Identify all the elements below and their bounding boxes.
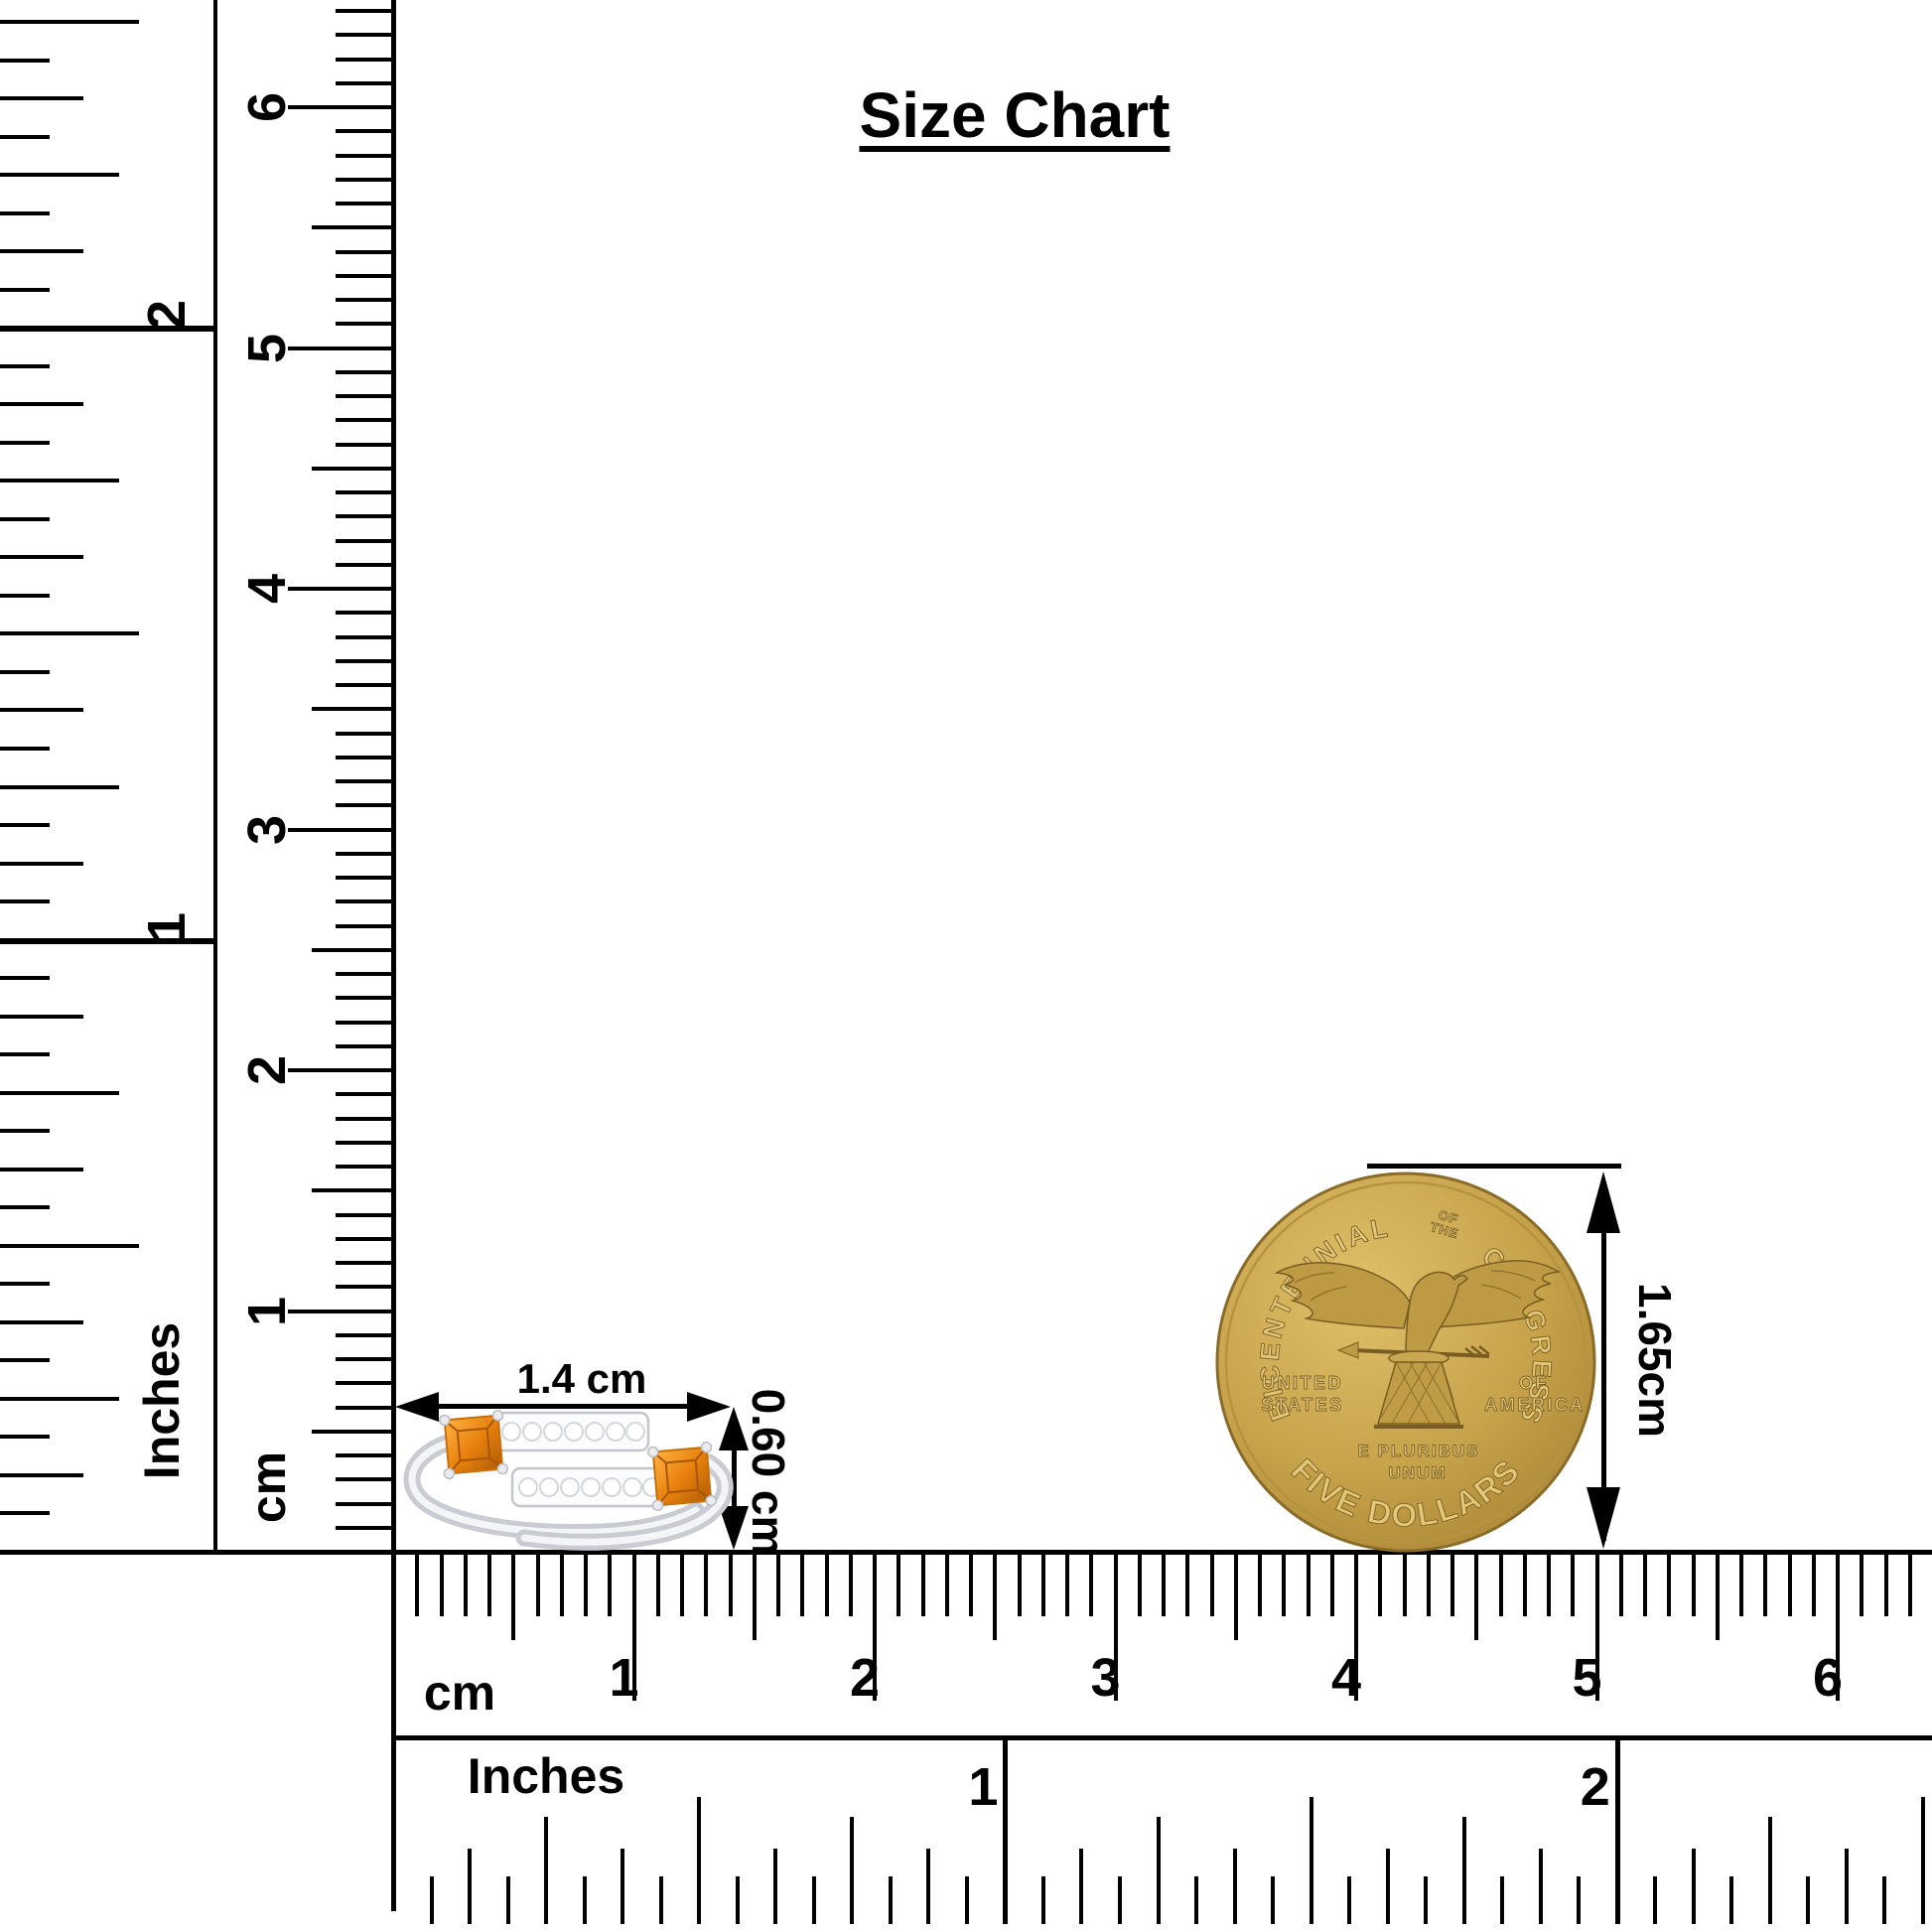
inch-tick (0, 747, 50, 751)
cm-tick (1185, 1555, 1189, 1616)
cm-tick (336, 490, 393, 494)
cm-tick (336, 1502, 393, 1506)
cm-tick (336, 58, 393, 62)
cm-tick (336, 1165, 393, 1169)
cm-tick (336, 1526, 393, 1530)
coin-motto-line1: E PLURIBUS (1358, 1442, 1480, 1460)
cm-tick (336, 1477, 393, 1481)
ruler-number: 3 (236, 814, 298, 844)
cm-tick (945, 1555, 949, 1616)
cm-tick (288, 828, 393, 832)
cm-tick (336, 178, 393, 182)
inch-tick (0, 976, 50, 980)
cm-tick (336, 1406, 393, 1410)
coin-motto-line2: UNUM (1389, 1463, 1448, 1482)
cm-tick (336, 298, 393, 302)
cm-tick (336, 972, 393, 976)
cm-tick (584, 1555, 588, 1616)
left-cm-ruler-edge (391, 0, 396, 1911)
cm-tick (336, 732, 393, 736)
cm-tick (464, 1555, 468, 1616)
inch-tick (0, 1168, 83, 1172)
inch-tick (659, 1876, 663, 1924)
cm-tick (1474, 1555, 1478, 1640)
inch-tick (1347, 1876, 1351, 1924)
inch-tick (1271, 1876, 1275, 1924)
cm-tick (312, 948, 393, 952)
cm-tick (753, 1555, 757, 1640)
inch-tick (1310, 1797, 1313, 1924)
coin-states-text: STATES (1261, 1395, 1343, 1415)
bottom-cm-label: cm (424, 1664, 495, 1722)
cm-tick (312, 707, 393, 711)
cm-tick (1643, 1555, 1647, 1616)
inch-tick (0, 1282, 50, 1286)
cm-tick (1739, 1555, 1743, 1616)
ruler-number: 6 (1813, 1647, 1843, 1709)
inch-tick (621, 1849, 624, 1924)
inch-tick (1500, 1876, 1504, 1924)
cm-tick (336, 1285, 393, 1289)
inch-tick (0, 20, 139, 24)
cm-tick (776, 1555, 780, 1616)
cm-tick (560, 1555, 564, 1616)
cm-tick (336, 924, 393, 928)
inch-tick (0, 517, 50, 521)
inch-tick (926, 1849, 930, 1924)
cm-tick (336, 1381, 393, 1385)
inch-tick (1118, 1876, 1122, 1924)
cm-tick (1499, 1555, 1503, 1616)
inch-tick (0, 1511, 50, 1515)
left-inches-label: Inches (133, 1322, 191, 1479)
inch-tick (1882, 1876, 1886, 1924)
ruler-number: 2 (1581, 1756, 1610, 1818)
inch-tick (0, 1205, 50, 1209)
inch-tick (0, 1397, 119, 1401)
cm-tick (1619, 1555, 1623, 1616)
inch-tick (0, 249, 83, 253)
ruler-number: 1 (968, 1756, 998, 1818)
cm-tick (336, 514, 393, 518)
cm-tick (1716, 1555, 1720, 1640)
inch-tick (1079, 1849, 1083, 1924)
coin-america-text: AMERICA (1484, 1395, 1586, 1415)
cm-tick (336, 1117, 393, 1121)
coin-top-reference-line (1367, 1164, 1621, 1169)
inch-tick (1653, 1876, 1657, 1924)
cm-tick (336, 443, 393, 447)
page-title: Size Chart (860, 78, 1171, 152)
cm-tick (1089, 1555, 1093, 1616)
inch-tick (0, 288, 50, 292)
inch-tick (583, 1876, 587, 1924)
cm-tick (336, 1357, 393, 1361)
cm-tick (1908, 1555, 1912, 1616)
cm-tick (1403, 1555, 1407, 1616)
coin-image: BICENTENNIAL CONGRESS OF THE FIVE DOLLAR… (1215, 1172, 1596, 1553)
inch-tick (1692, 1849, 1696, 1924)
cm-tick (1162, 1555, 1166, 1616)
cm-tick (897, 1555, 900, 1616)
cm-tick (1307, 1555, 1311, 1616)
inch-tick (965, 1876, 969, 1924)
cm-tick (288, 105, 393, 109)
coin-of2-text: OF (1519, 1373, 1549, 1393)
inch-tick (0, 631, 139, 635)
inch-tick (544, 1817, 548, 1924)
ruler-number: 6 (236, 92, 298, 122)
cm-tick (288, 1068, 393, 1072)
bottom-inches-label: Inches (468, 1747, 624, 1805)
cm-tick (656, 1555, 660, 1616)
cm-tick (1692, 1555, 1696, 1616)
cm-tick (336, 274, 393, 278)
cm-tick (1234, 1555, 1238, 1640)
inch-tick (697, 1797, 701, 1924)
coin-height-label: 1.65cm (1628, 1283, 1682, 1438)
cm-tick (336, 899, 393, 903)
cm-tick (1860, 1555, 1863, 1616)
cm-tick (336, 129, 393, 133)
cm-tick (1788, 1555, 1792, 1616)
cm-tick (1812, 1555, 1816, 1616)
cm-tick (511, 1555, 515, 1640)
cm-tick (312, 1188, 393, 1192)
inch-tick (1615, 1739, 1620, 1924)
cm-tick (1571, 1555, 1575, 1616)
ruler-number: 1 (136, 912, 198, 942)
cm-tick (312, 467, 393, 471)
cm-tick (336, 611, 393, 615)
ruler-number: 5 (1572, 1647, 1601, 1709)
cm-tick (288, 587, 393, 591)
inch-tick (0, 211, 50, 215)
cm-tick (336, 9, 393, 13)
inch-tick (1539, 1849, 1543, 1924)
cm-tick (1330, 1555, 1334, 1616)
cm-tick (312, 225, 393, 229)
inch-tick (468, 1849, 472, 1924)
cm-tick (336, 635, 393, 639)
inch-tick (506, 1876, 510, 1924)
cm-tick (336, 394, 393, 398)
cm-tick (969, 1555, 973, 1616)
cm-tick (336, 563, 393, 567)
cm-tick (1018, 1555, 1022, 1616)
cm-tick (440, 1555, 444, 1616)
inch-tick (850, 1817, 854, 1924)
inch-tick (0, 402, 83, 406)
inch-tick (1921, 1797, 1925, 1924)
inch-tick (1577, 1876, 1581, 1924)
cm-tick (1065, 1555, 1069, 1616)
inch-tick (0, 1358, 50, 1362)
inch-tick (0, 670, 50, 674)
inch-tick (0, 59, 50, 63)
cm-tick (336, 1237, 393, 1241)
cm-tick (336, 1453, 393, 1457)
cm-tick (825, 1555, 829, 1616)
ruler-number: 3 (1090, 1647, 1120, 1709)
cm-tick (1450, 1555, 1454, 1616)
ring-right-stone (647, 1442, 716, 1510)
cm-tick (336, 154, 393, 158)
cm-tick (704, 1555, 708, 1616)
inch-tick (1806, 1876, 1810, 1924)
cm-tick (336, 81, 393, 85)
cm-tick (336, 1021, 393, 1025)
cm-tick (336, 1333, 393, 1337)
inch-tick (430, 1876, 434, 1924)
left-cm-label: cm (239, 1451, 297, 1523)
cm-tick (336, 779, 393, 783)
cm-tick (336, 1141, 393, 1145)
cm-tick (336, 250, 393, 254)
inch-tick (1462, 1817, 1466, 1924)
inch-tick (736, 1876, 740, 1924)
inch-tick (0, 135, 50, 139)
inch-tick (1729, 1876, 1733, 1924)
inch-tick (0, 594, 50, 598)
cm-tick (336, 659, 393, 663)
cm-tick (336, 683, 393, 687)
inch-tick (0, 1473, 83, 1477)
ruler-number: 2 (136, 300, 198, 330)
inch-tick (0, 1244, 139, 1248)
inch-tick (0, 364, 50, 368)
cm-tick (336, 803, 393, 807)
cm-tick (536, 1555, 540, 1616)
inch-tick (0, 823, 50, 827)
ruler-number: 5 (236, 333, 298, 362)
inch-tick (0, 1129, 50, 1133)
cm-tick (487, 1555, 491, 1616)
cm-tick (336, 1261, 393, 1265)
cm-tick (336, 202, 393, 206)
inch-tick (1233, 1849, 1237, 1924)
ring-upper-diamond-bar (495, 1413, 648, 1450)
cm-tick (1282, 1555, 1286, 1616)
cm-tick (288, 346, 393, 350)
cm-tick (1138, 1555, 1142, 1616)
ring-lower-diamond-bar (512, 1468, 665, 1506)
cm-tick (921, 1555, 925, 1616)
cm-tick (608, 1555, 612, 1616)
ruler-number: 1 (609, 1647, 638, 1709)
cm-tick (680, 1555, 684, 1616)
cm-tick (415, 1555, 419, 1616)
inch-tick (1157, 1817, 1161, 1924)
cm-tick (288, 1310, 393, 1313)
inch-tick (0, 1320, 83, 1324)
inch-tick (1003, 1739, 1008, 1924)
inch-tick (0, 96, 83, 100)
inch-tick (1768, 1817, 1772, 1924)
cm-tick (336, 756, 393, 759)
cm-tick (336, 852, 393, 856)
ruler-number: 2 (850, 1647, 880, 1709)
cm-tick (336, 33, 393, 37)
cm-tick (1258, 1555, 1262, 1616)
cm-tick (1378, 1555, 1382, 1616)
inch-tick (0, 899, 50, 903)
cm-tick (336, 539, 393, 543)
inch-tick (812, 1876, 816, 1924)
ring-left-stone (439, 1410, 507, 1478)
cm-tick (336, 876, 393, 880)
cm-tick (1763, 1555, 1767, 1616)
cm-tick (800, 1555, 804, 1616)
inch-tick (0, 1091, 119, 1095)
cm-tick (1210, 1555, 1214, 1616)
inch-tick (0, 441, 50, 445)
cm-tick (1041, 1555, 1045, 1616)
cm-tick (1547, 1555, 1551, 1616)
inch-tick (0, 555, 83, 559)
ring-image (393, 1393, 737, 1554)
cm-tick (1884, 1555, 1888, 1616)
cm-tick (336, 418, 393, 422)
ruler-number: 4 (236, 574, 298, 604)
coin-united-text: UNITED (1262, 1373, 1343, 1393)
cm-tick (336, 1213, 393, 1217)
inch-tick (0, 785, 119, 789)
inch-tick (0, 1435, 50, 1439)
cm-tick (336, 996, 393, 1000)
inch-tick (1845, 1849, 1849, 1924)
cm-tick (312, 1430, 393, 1434)
cm-tick (849, 1555, 853, 1616)
inch-tick (0, 1015, 83, 1019)
inch-tick (1041, 1876, 1045, 1924)
cm-tick (729, 1555, 733, 1616)
cm-tick (993, 1555, 997, 1640)
cm-tick (336, 370, 393, 374)
cm-tick (336, 1044, 393, 1048)
inch-tick (1386, 1849, 1390, 1924)
cm-tick (1523, 1555, 1527, 1616)
ring-height-label: 0.60 cm (742, 1389, 795, 1557)
inch-tick (0, 708, 83, 712)
left-inches-ruler-edge (213, 0, 217, 1552)
cm-tick (336, 1092, 393, 1096)
inch-tick (0, 1052, 50, 1056)
cm-tick (1427, 1555, 1431, 1616)
size-chart-image: Size Chart 12 123456 123456 12 Inches cm… (0, 0, 1932, 1932)
inch-tick (1424, 1876, 1428, 1924)
ruler-number: 4 (1331, 1647, 1361, 1709)
ruler-number: 2 (236, 1055, 298, 1085)
inch-tick (1194, 1876, 1198, 1924)
bottom-inches-ruler-edge (391, 1735, 1932, 1740)
inch-tick (0, 862, 83, 866)
inch-tick (0, 173, 119, 177)
cm-tick (336, 322, 393, 326)
ruler-number: 1 (236, 1296, 298, 1325)
cm-tick (1667, 1555, 1671, 1616)
inch-tick (889, 1876, 893, 1924)
inch-tick (0, 479, 119, 483)
inch-tick (773, 1849, 777, 1924)
